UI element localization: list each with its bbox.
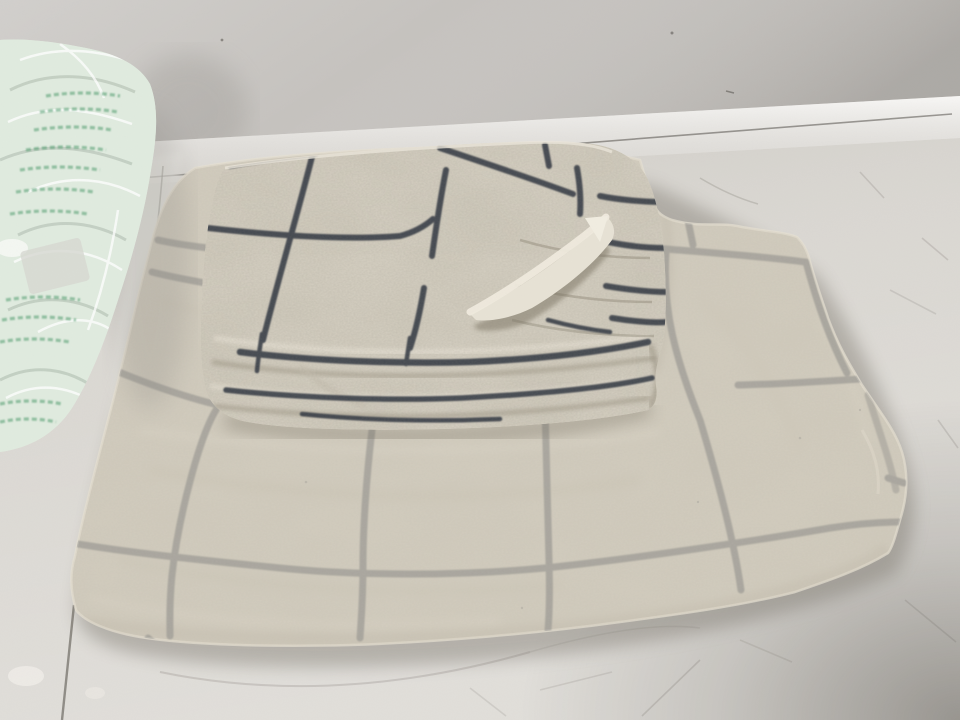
photo-folded-bedding — [0, 0, 960, 720]
photo-canvas — [0, 0, 960, 720]
photo-grain-overlay — [0, 0, 960, 720]
